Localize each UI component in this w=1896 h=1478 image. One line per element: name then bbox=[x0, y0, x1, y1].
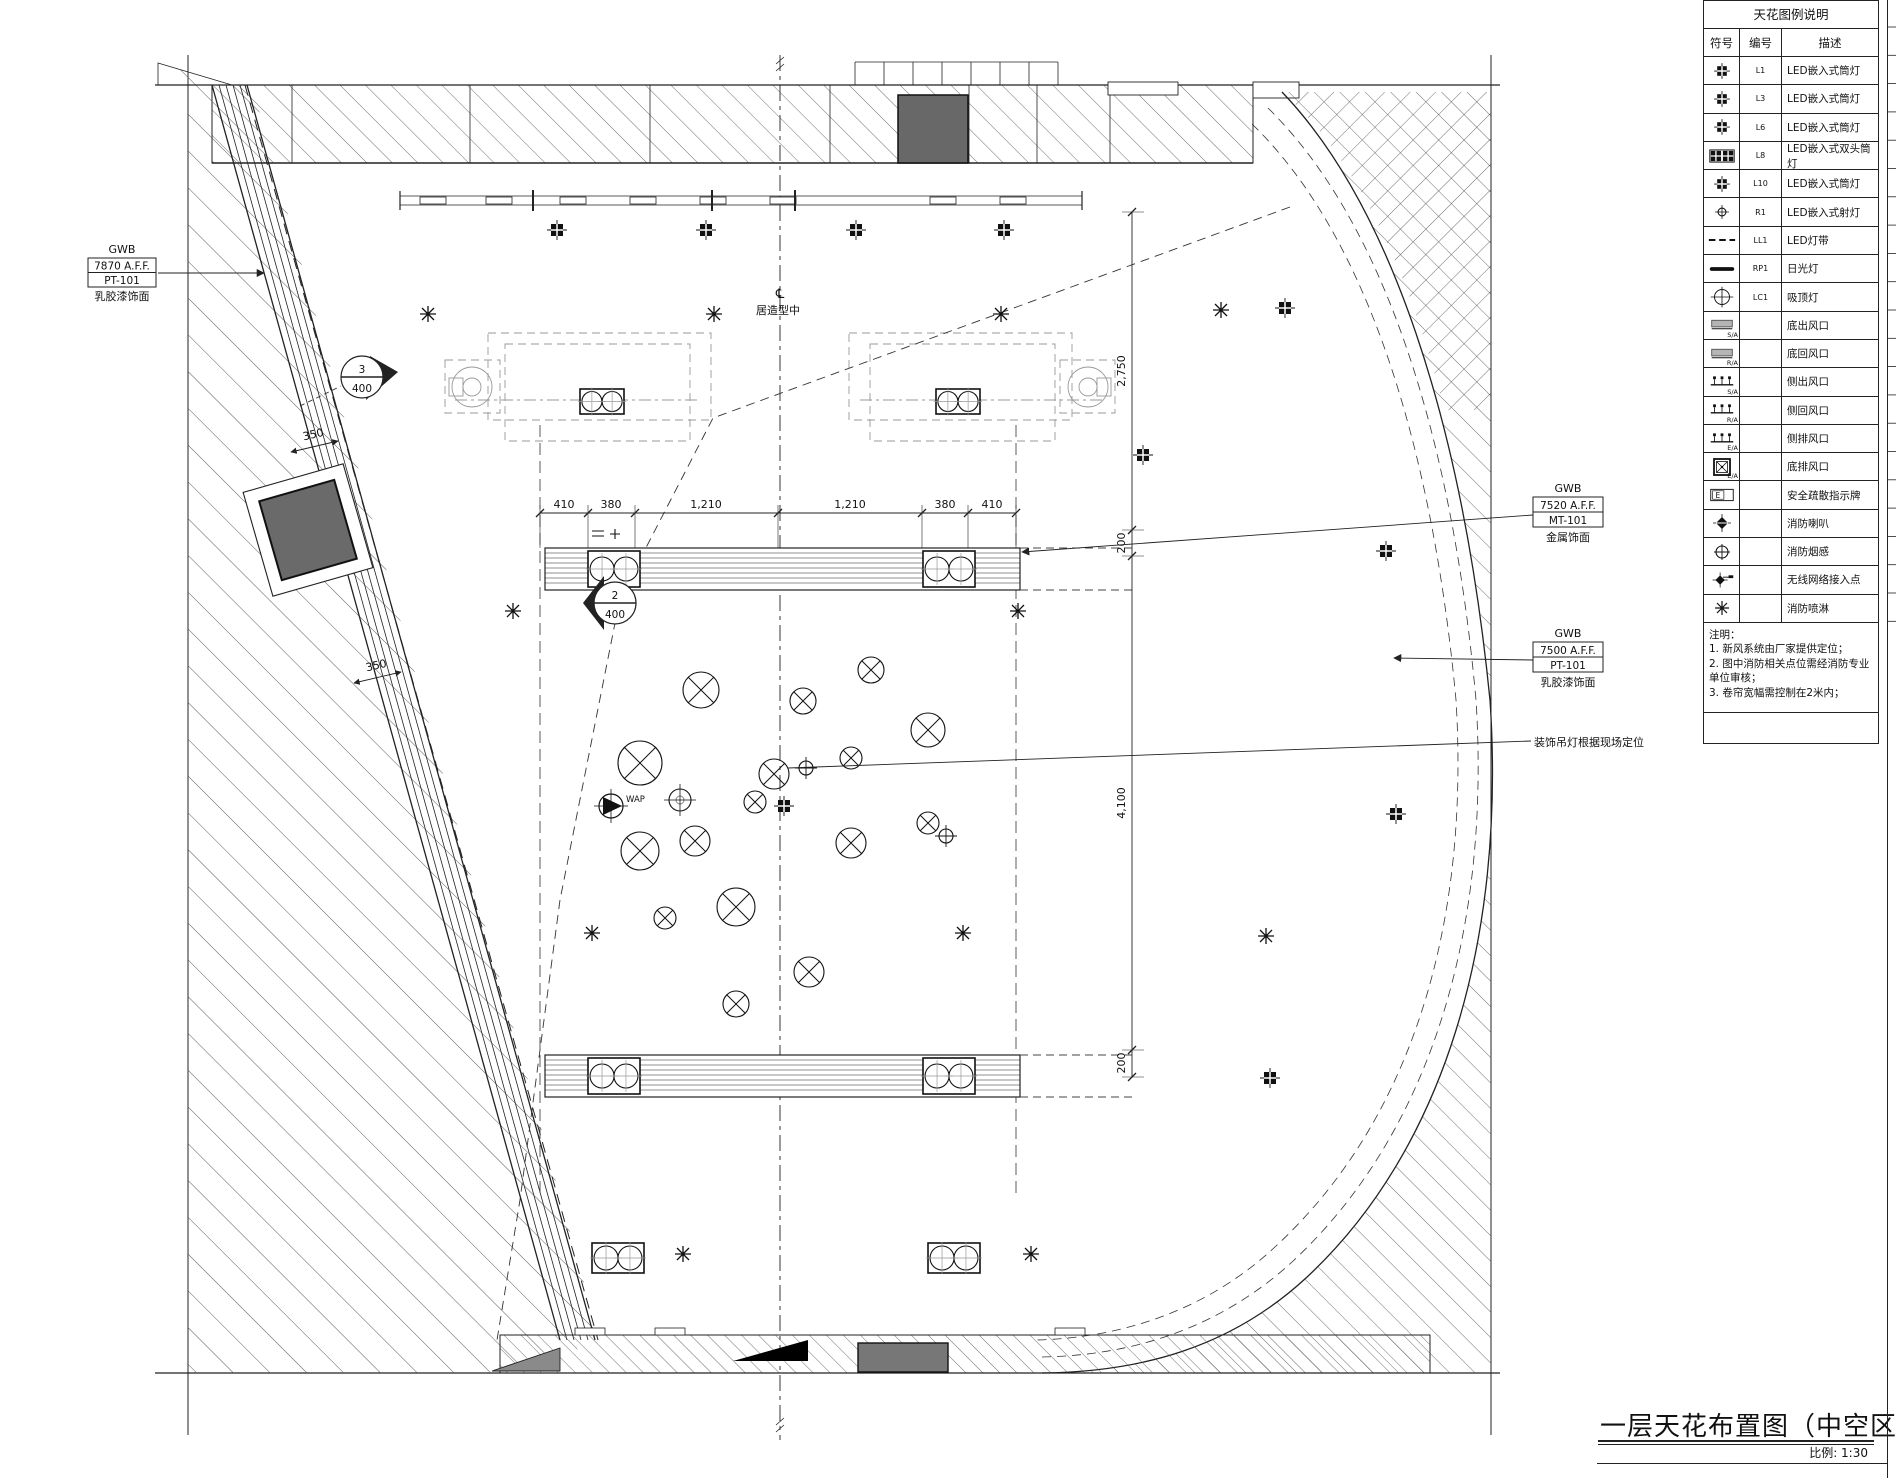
exit-sign-icon: E bbox=[1704, 481, 1740, 508]
band-fixture bbox=[575, 1328, 605, 1335]
gwb-callout-low: GWB 7500 A.F.F. PT-101 乳胶漆饰面 bbox=[1394, 627, 1603, 689]
legend-code bbox=[1740, 595, 1782, 622]
pendant-light-symbol bbox=[621, 832, 659, 870]
downlight-double-icon bbox=[1704, 142, 1740, 169]
legend-row: L1LED嵌入式筒灯 bbox=[1704, 57, 1878, 85]
legend-code bbox=[1740, 481, 1782, 508]
spotlight-icon bbox=[1704, 198, 1740, 225]
construction-lines bbox=[497, 207, 1290, 1340]
notes-title: 注明： bbox=[1709, 628, 1873, 643]
smoke-detector-icon bbox=[1704, 538, 1740, 565]
centerline bbox=[776, 55, 784, 1440]
legend-row: 消防烟感 bbox=[1704, 538, 1878, 566]
legend-desc: 底回风口 bbox=[1782, 340, 1878, 367]
material-finish: 乳胶漆饰面 bbox=[95, 289, 150, 303]
dim-label: 1,210 bbox=[690, 498, 722, 511]
downlight-symbol bbox=[1386, 804, 1406, 824]
sprinkler-symbol bbox=[955, 925, 971, 941]
double-downlight-symbol bbox=[934, 388, 982, 416]
band-fixture bbox=[655, 1328, 685, 1335]
structural-column bbox=[898, 95, 968, 163]
cross bbox=[624, 747, 656, 779]
material-head: GWB bbox=[109, 243, 136, 256]
beam-stripes bbox=[545, 553, 1020, 1090]
cross bbox=[920, 815, 936, 831]
legend-code bbox=[1740, 453, 1782, 480]
legend-code: L10 bbox=[1740, 170, 1782, 197]
curved-wall bbox=[1036, 92, 1492, 1373]
legend-desc: LED嵌入式射灯 bbox=[1782, 198, 1878, 225]
legend-desc: 吸顶灯 bbox=[1782, 283, 1878, 310]
star bbox=[1023, 1246, 1039, 1262]
vent-side-icon: S/A bbox=[1704, 368, 1740, 395]
cross bbox=[794, 692, 812, 710]
sprinkler-symbol bbox=[584, 925, 600, 941]
pendant-light-symbol bbox=[618, 741, 662, 785]
legend-header-code: 编号 bbox=[1740, 29, 1782, 56]
sprinkler-symbol bbox=[706, 306, 722, 322]
sprinklers bbox=[420, 302, 1274, 1262]
sheet-border bbox=[1887, 0, 1888, 1478]
note-item: 1. 新风系统由厂家提供定位； bbox=[1709, 642, 1873, 657]
material-height: 7520 A.F.F. bbox=[1540, 500, 1596, 512]
pendant-light-symbol bbox=[744, 791, 766, 813]
double-downlight-symbol bbox=[578, 388, 626, 416]
switch-mark bbox=[592, 529, 620, 539]
pendant-lights bbox=[618, 657, 945, 1017]
legend-footer bbox=[1704, 713, 1878, 743]
legend-code: L8 bbox=[1740, 142, 1782, 169]
dimension-ticks bbox=[1122, 208, 1144, 1081]
cross bbox=[727, 995, 745, 1013]
legend-row: S/A侧出风口 bbox=[1704, 368, 1878, 396]
curtain-track bbox=[400, 190, 1082, 211]
pendant-light-symbol bbox=[680, 826, 710, 856]
cross bbox=[843, 750, 859, 766]
track-fixture bbox=[770, 197, 796, 204]
legend-row: L8LED嵌入式双头筒灯 bbox=[1704, 142, 1878, 170]
cross bbox=[664, 784, 696, 816]
double-downlight-symbol bbox=[590, 1242, 646, 1274]
legend-code: LL1 bbox=[1740, 227, 1782, 254]
svg-text:E: E bbox=[1715, 491, 1720, 500]
vent-tag: R/A bbox=[1727, 360, 1738, 367]
fire-speaker-icon bbox=[1704, 510, 1740, 537]
ceiling-beams bbox=[545, 529, 1135, 1097]
legend-desc: 无线网络接入点 bbox=[1782, 566, 1878, 593]
dim-label: 1,210 bbox=[834, 498, 866, 511]
legend-desc: 底出风口 bbox=[1782, 312, 1878, 339]
left-diagonal-wall bbox=[158, 63, 600, 1373]
legend-desc: LED灯带 bbox=[1782, 227, 1878, 254]
callout-number: 3 bbox=[359, 364, 366, 376]
vent-tag: S/A bbox=[1727, 332, 1738, 339]
legend-desc: 消防烟感 bbox=[1782, 538, 1878, 565]
pendant-light-symbol bbox=[683, 672, 719, 708]
cross bbox=[747, 794, 763, 810]
cross bbox=[627, 838, 653, 864]
drawing-sheet: WAP 3 400 2 400 410 380 1,210 1,210 380 … bbox=[0, 0, 1896, 1478]
vent-bottom-icon: S/A bbox=[1704, 312, 1740, 339]
legend-desc: 消防喷淋 bbox=[1782, 595, 1878, 622]
legend-desc: 日光灯 bbox=[1782, 255, 1878, 282]
star bbox=[675, 1246, 691, 1262]
vent-bottom-icon: R/A bbox=[1704, 340, 1740, 367]
ceiling-lamp-icon bbox=[1704, 283, 1740, 310]
sprinkler-symbol bbox=[1258, 928, 1274, 944]
legend-title: 天花图例说明 bbox=[1704, 1, 1878, 29]
legend-row: E安全疏散指示牌 bbox=[1704, 481, 1878, 509]
legend-desc: 底排风口 bbox=[1782, 453, 1878, 480]
cross bbox=[688, 677, 714, 703]
legend-desc: 侧出风口 bbox=[1782, 368, 1878, 395]
dim-label: 4,100 bbox=[1115, 787, 1128, 819]
wireless-ap-icon bbox=[1704, 566, 1740, 593]
star bbox=[584, 925, 600, 941]
legend-code bbox=[1740, 312, 1782, 339]
vent-tag: R/A bbox=[1727, 417, 1738, 424]
pendant-note-label: 装饰吊灯根据现场定位 bbox=[1534, 735, 1644, 749]
dim-label: 200 bbox=[1115, 1053, 1128, 1074]
pendant-light-symbol bbox=[790, 688, 816, 714]
legend-row: R/A底回风口 bbox=[1704, 340, 1878, 368]
fluorescent-icon bbox=[1704, 255, 1740, 282]
material-code: PT-101 bbox=[1550, 660, 1586, 672]
legend-desc: 侧回风口 bbox=[1782, 397, 1878, 424]
double-downlight-symbol bbox=[921, 551, 977, 587]
callout-number: 2 bbox=[612, 590, 619, 602]
vent-side-icon: R/A bbox=[1704, 397, 1740, 424]
centerline-label: ℄ 居造型中 bbox=[756, 287, 800, 317]
legend-row: L3LED嵌入式筒灯 bbox=[1704, 85, 1878, 113]
legend-code: L3 bbox=[1740, 85, 1782, 112]
material-finish: 乳胶漆饰面 bbox=[1541, 675, 1596, 689]
pendant-light-symbol bbox=[917, 812, 939, 834]
legend-code bbox=[1740, 510, 1782, 537]
legend-desc: LED嵌入式筒灯 bbox=[1782, 114, 1878, 141]
double-downlight-symbol bbox=[586, 1058, 642, 1094]
legend-row: L10LED嵌入式筒灯 bbox=[1704, 170, 1878, 198]
legend-code bbox=[1740, 340, 1782, 367]
legend-row: E/A底排风口 bbox=[1704, 453, 1878, 481]
vent-tag: E/A bbox=[1727, 473, 1738, 480]
notes-items: 1. 新风系统由厂家提供定位；2. 图中消防相关点位需经消防专业单位审核；3. … bbox=[1709, 642, 1873, 700]
track-fixture bbox=[560, 197, 586, 204]
legend-header-desc: 描述 bbox=[1782, 29, 1878, 56]
title-underline bbox=[1598, 1440, 1874, 1442]
vent-tag: E/A bbox=[1727, 445, 1738, 452]
legend-code bbox=[1740, 538, 1782, 565]
wap-label: WAP bbox=[626, 795, 645, 805]
legend-row: LL1LED灯带 bbox=[1704, 227, 1878, 255]
track-fixture bbox=[930, 197, 956, 204]
downlight-symbol bbox=[994, 220, 1014, 240]
sprinkler-symbol bbox=[993, 306, 1009, 322]
callout-sheet: 400 bbox=[605, 609, 625, 621]
legend-row: E/A侧排风口 bbox=[1704, 425, 1878, 453]
pendant-light-symbol bbox=[654, 907, 676, 929]
pendant-light-symbol bbox=[858, 657, 884, 683]
ceiling-plan-svg: WAP 3 400 2 400 410 380 1,210 1,210 380 … bbox=[0, 0, 1896, 1478]
titleblock-line bbox=[1597, 1463, 1887, 1464]
legend-desc: LED嵌入式筒灯 bbox=[1782, 170, 1878, 197]
dim-label: 410 bbox=[554, 498, 575, 511]
legend-desc: LED嵌入式筒灯 bbox=[1782, 57, 1878, 84]
dark-block bbox=[858, 1343, 948, 1372]
downlight-symbol bbox=[1260, 1068, 1280, 1088]
downlight-icon bbox=[1704, 57, 1740, 84]
vent-exhaust-icon: E/A bbox=[1704, 453, 1740, 480]
sprinkler-symbol bbox=[1023, 1246, 1039, 1262]
note-item: 3. 卷帘宽幅需控制在2米内； bbox=[1709, 686, 1873, 701]
downlight-icon bbox=[1704, 85, 1740, 112]
sprinkler-symbol bbox=[505, 603, 521, 619]
dim-label: 2,750 bbox=[1115, 355, 1128, 387]
track-fixture bbox=[420, 197, 446, 204]
pendant-light-symbol bbox=[836, 828, 866, 858]
track-fixture bbox=[630, 197, 656, 204]
dim-label: 200 bbox=[1115, 533, 1128, 554]
downlight-symbol bbox=[547, 220, 567, 240]
legend-code bbox=[1740, 397, 1782, 424]
pendant-light-symbol bbox=[759, 759, 789, 789]
double-downlight-symbol bbox=[921, 1058, 977, 1094]
centerline-text: 居造型中 bbox=[756, 303, 800, 317]
downlight-symbol bbox=[1133, 445, 1153, 465]
downlight-symbol bbox=[1275, 298, 1295, 318]
downlight-symbol bbox=[1376, 541, 1396, 561]
sprinkler-symbol bbox=[1010, 603, 1026, 619]
gwb-callout-mid: GWB 7520 A.F.F. MT-101 金属饰面 bbox=[1022, 482, 1603, 552]
dim-label: 380 bbox=[935, 498, 956, 511]
legend-code: LC1 bbox=[1740, 283, 1782, 310]
material-height: 7870 A.F.F. bbox=[94, 261, 150, 273]
recessed-downlights bbox=[547, 220, 1406, 1088]
legend-code bbox=[1740, 368, 1782, 395]
legend-notes: 注明： 1. 新风系统由厂家提供定位；2. 图中消防相关点位需经消防专业单位审核… bbox=[1704, 623, 1878, 713]
material-height: 7500 A.F.F. bbox=[1540, 645, 1596, 657]
legend-desc: LED嵌入式双头筒灯 bbox=[1782, 142, 1878, 169]
bottom-band-rects bbox=[575, 1328, 1085, 1335]
legend-rows: L1LED嵌入式筒灯L3LED嵌入式筒灯L6LED嵌入式筒灯L8LED嵌入式双头… bbox=[1704, 57, 1878, 623]
legend-row: R1LED嵌入式射灯 bbox=[1704, 198, 1878, 226]
legend-header-symbol: 符号 bbox=[1704, 29, 1740, 56]
material-head: GWB bbox=[1555, 482, 1582, 495]
downlight-icon bbox=[1704, 170, 1740, 197]
pendant-light-symbol bbox=[794, 957, 824, 987]
sprinkler-icon bbox=[1704, 595, 1740, 622]
track-fixture bbox=[486, 197, 512, 204]
pendant-light-symbol bbox=[717, 888, 755, 926]
led-strip-icon bbox=[1704, 227, 1740, 254]
legend-desc: LED嵌入式筒灯 bbox=[1782, 85, 1878, 112]
dimension-chain-top: 410 380 1,210 1,210 380 410 bbox=[536, 498, 1020, 548]
pendant-light-symbol bbox=[911, 713, 945, 747]
legend-code: L6 bbox=[1740, 114, 1782, 141]
star bbox=[706, 306, 722, 322]
pendant-light-symbol bbox=[723, 991, 749, 1017]
star bbox=[993, 306, 1009, 322]
legend-code: L1 bbox=[1740, 57, 1782, 84]
material-head: GWB bbox=[1555, 627, 1582, 640]
material-finish: 金属饰面 bbox=[1546, 530, 1590, 544]
legend-desc: 消防喇叭 bbox=[1782, 510, 1878, 537]
drawing-scale: 比例: 1:30 bbox=[1744, 1444, 1868, 1461]
spotlights bbox=[664, 784, 696, 816]
star bbox=[1258, 928, 1274, 944]
cross bbox=[723, 894, 749, 920]
vent-side-icon: E/A bbox=[1704, 425, 1740, 452]
star bbox=[1010, 603, 1026, 619]
legend-row: 消防喷淋 bbox=[1704, 595, 1878, 623]
double-downlight-symbol bbox=[926, 1242, 982, 1274]
cross bbox=[916, 718, 940, 742]
legend-desc: 安全疏散指示牌 bbox=[1782, 481, 1878, 508]
note-item: 2. 图中消防相关点位需经消防专业单位审核； bbox=[1709, 657, 1873, 686]
cross bbox=[862, 661, 880, 679]
spotlight-symbol bbox=[664, 784, 696, 816]
legend-code: R1 bbox=[1740, 198, 1782, 225]
star bbox=[420, 306, 436, 322]
downlight-symbol bbox=[846, 220, 866, 240]
legend-code: RP1 bbox=[1740, 255, 1782, 282]
legend-row: R/A侧回风口 bbox=[1704, 397, 1878, 425]
dim-label: 410 bbox=[982, 498, 1003, 511]
star bbox=[505, 603, 521, 619]
legend-desc: 侧排风口 bbox=[1782, 425, 1878, 452]
sprinkler-symbol bbox=[675, 1246, 691, 1262]
downlight-icon bbox=[1704, 114, 1740, 141]
vent-tag: S/A bbox=[1727, 389, 1738, 396]
downlight-symbol bbox=[774, 796, 794, 816]
legend-header: 符号 编号 描述 bbox=[1704, 29, 1878, 57]
smoke-detector-symbol bbox=[935, 825, 957, 847]
cross bbox=[935, 825, 957, 847]
wap-symbol: WAP bbox=[594, 789, 645, 823]
legend-row: 消防喇叭 bbox=[1704, 510, 1878, 538]
cross bbox=[840, 832, 862, 854]
track-fixture bbox=[1000, 197, 1026, 204]
legend-code bbox=[1740, 425, 1782, 452]
legend-row: L6LED嵌入式筒灯 bbox=[1704, 114, 1878, 142]
legend-row: LC1吸顶灯 bbox=[1704, 283, 1878, 311]
sprinkler-symbol bbox=[1213, 302, 1229, 318]
drawing-title: 一层天花布置图（中空区域） bbox=[1600, 1406, 1876, 1443]
pendant-note: 装饰吊灯根据现场定位 bbox=[788, 735, 1644, 768]
sheet-margin-stubs bbox=[1887, 27, 1896, 621]
downlight-symbol bbox=[696, 220, 716, 240]
top-wall-band bbox=[212, 62, 1299, 163]
cross bbox=[763, 763, 785, 785]
legend-code bbox=[1740, 566, 1782, 593]
centerline-mark: ℄ bbox=[775, 287, 785, 302]
band-fixture bbox=[1055, 1328, 1085, 1335]
top-strip-grid bbox=[855, 62, 1058, 85]
material-code: MT-101 bbox=[1549, 515, 1587, 527]
legend-row: 无线网络接入点 bbox=[1704, 566, 1878, 594]
dimension-ticks bbox=[536, 505, 1020, 548]
cross bbox=[798, 961, 820, 983]
sprinkler-symbol bbox=[420, 306, 436, 322]
legend-panel: 天花图例说明 符号 编号 描述 L1LED嵌入式筒灯L3LED嵌入式筒灯L6LE… bbox=[1703, 0, 1879, 744]
material-code: PT-101 bbox=[104, 275, 140, 287]
star bbox=[955, 925, 971, 941]
legend-row: RP1日光灯 bbox=[1704, 255, 1878, 283]
legend-row: S/A底出风口 bbox=[1704, 312, 1878, 340]
cross bbox=[684, 830, 706, 852]
cross bbox=[657, 910, 673, 926]
dimension-chain-right: 2,750 200 4,100 200 bbox=[1115, 208, 1144, 1081]
callout-sheet: 400 bbox=[352, 383, 372, 395]
track-parts bbox=[420, 190, 1026, 211]
bottom-wall-band bbox=[492, 1328, 1430, 1373]
dim-label: 380 bbox=[601, 498, 622, 511]
star bbox=[1213, 302, 1229, 318]
